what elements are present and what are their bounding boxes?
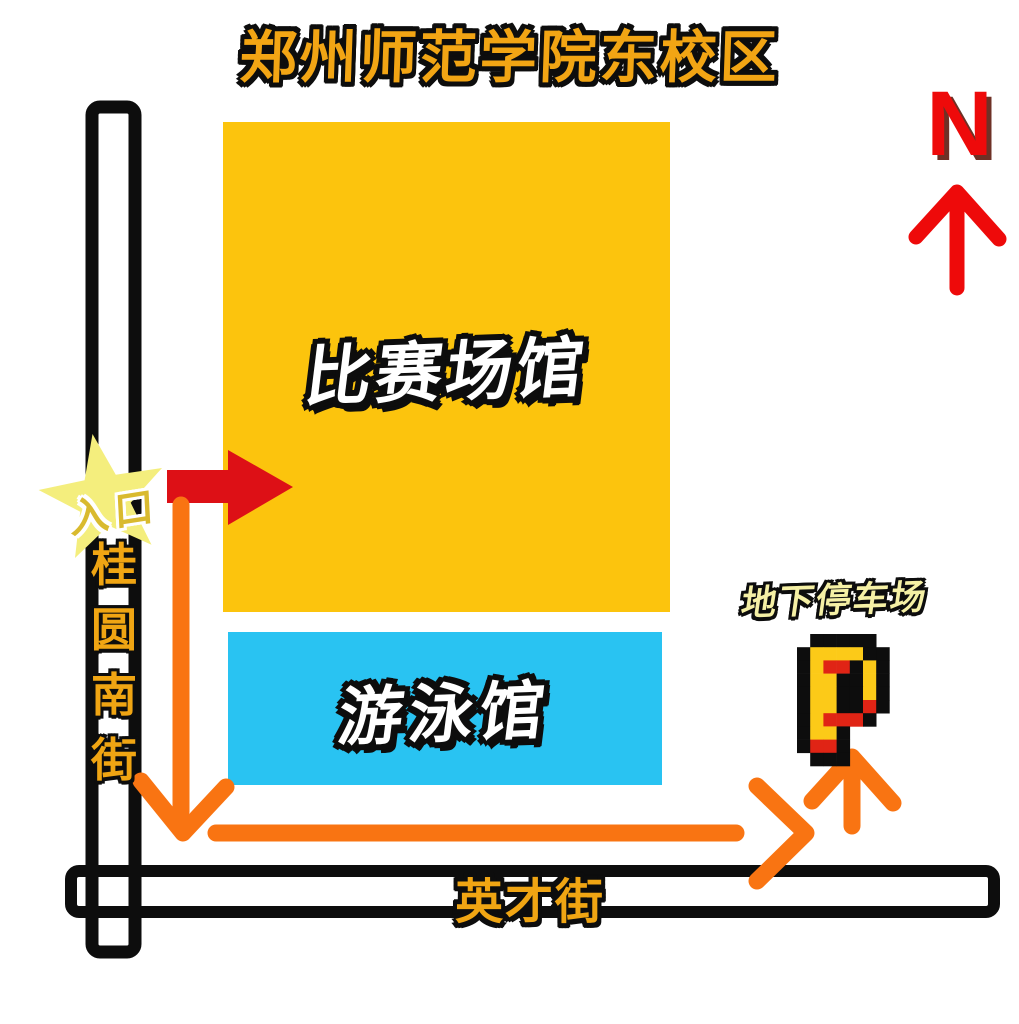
parking-pixel	[823, 674, 837, 688]
parking-pixel	[837, 660, 851, 674]
parking-label: 地下停车场	[718, 568, 952, 627]
parking-pixel	[863, 687, 877, 701]
street-char: 街	[91, 728, 137, 793]
street-char: 南	[91, 663, 137, 728]
north-letter: N	[912, 72, 1007, 177]
parking-p-pixel-icon	[797, 634, 890, 766]
parking-pixel	[810, 687, 824, 701]
street-char: 桂	[91, 533, 137, 598]
parking-pixel	[850, 700, 864, 714]
parking-pixel	[810, 700, 824, 714]
parking-pixel	[876, 700, 890, 714]
parking-pixel	[837, 687, 851, 701]
parking-pixel	[797, 647, 811, 661]
parking-pixel	[797, 713, 811, 727]
parking-pixel	[850, 674, 864, 688]
parking-pixel	[837, 740, 851, 754]
parking-pixel	[823, 647, 837, 661]
parking-pixel	[823, 634, 837, 648]
parking-pixel	[837, 634, 851, 648]
parking-pixel	[863, 700, 877, 714]
north-arrow-icon	[916, 192, 999, 288]
parking-pixel	[797, 687, 811, 701]
parking-pixel	[876, 674, 890, 688]
parking-pixel	[823, 687, 837, 701]
pool-label-box: 游泳馆	[228, 632, 662, 785]
parking-pixel	[863, 634, 877, 648]
parking-pixel	[823, 726, 837, 740]
arena-label: 比赛场馆	[300, 314, 593, 420]
parking-pixel	[797, 674, 811, 688]
parking-pixel	[863, 647, 877, 661]
parking-pixel	[837, 674, 851, 688]
parking-pixel	[837, 700, 851, 714]
vertical-street-name: 桂 圆 南 街	[92, 533, 136, 793]
horizontal-street-name: 英才街	[420, 862, 640, 932]
parking-pixel	[823, 740, 837, 754]
pool-label: 游泳馆	[334, 659, 556, 758]
parking-pixel	[876, 647, 890, 661]
parking-pixel	[810, 713, 824, 727]
campus-map: 郑州师范学院东校区 比赛场馆 游泳馆 桂 圆 南 街 英才街 入口 地下停车场 …	[0, 0, 1019, 1024]
parking-pixel	[810, 740, 824, 754]
parking-pixel	[823, 660, 837, 674]
parking-pixel	[837, 713, 851, 727]
parking-pixel	[837, 647, 851, 661]
parking-pixel	[863, 713, 877, 727]
parking-pixel	[863, 660, 877, 674]
parking-pixel	[850, 687, 864, 701]
parking-pixel	[810, 674, 824, 688]
arena-label-box: 比赛场馆	[223, 122, 670, 612]
parking-pixel	[823, 700, 837, 714]
parking-pixel	[876, 660, 890, 674]
parking-pixel	[823, 713, 837, 727]
parking-pixel	[850, 634, 864, 648]
parking-pixel	[850, 660, 864, 674]
parking-pixel	[850, 647, 864, 661]
parking-pixel	[810, 660, 824, 674]
parking-pixel	[797, 660, 811, 674]
parking-pixel	[810, 726, 824, 740]
parking-pixel	[863, 674, 877, 688]
parking-pixel	[837, 753, 851, 767]
page-title: 郑州师范学院东校区	[238, 12, 781, 94]
parking-pixel	[797, 700, 811, 714]
parking-pixel	[810, 647, 824, 661]
parking-pixel	[797, 726, 811, 740]
parking-pixel	[797, 740, 811, 754]
parking-pixel	[823, 753, 837, 767]
parking-pixel	[837, 726, 851, 740]
parking-pixel	[876, 687, 890, 701]
parking-pixel	[810, 634, 824, 648]
parking-pixel	[810, 753, 824, 767]
parking-pixel	[850, 713, 864, 727]
street-char: 圆	[91, 598, 137, 663]
